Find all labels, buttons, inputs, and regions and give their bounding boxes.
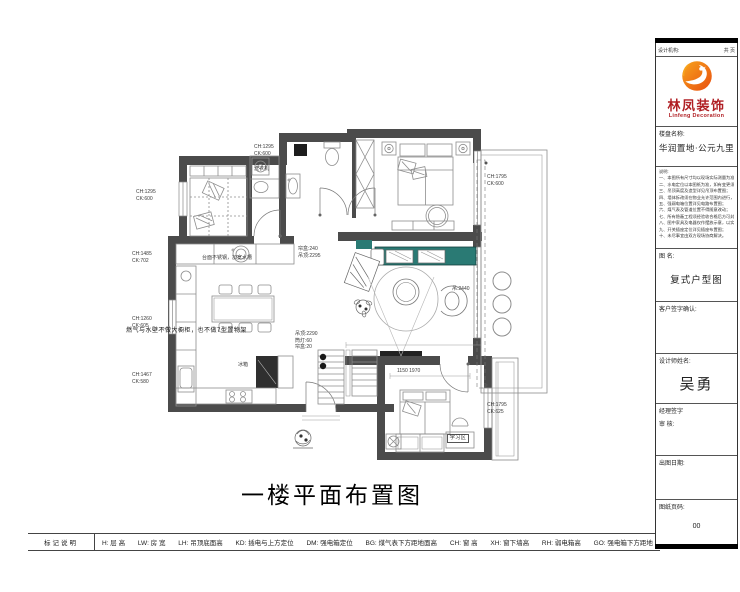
legend-item: RH: 弱电箱高: [542, 537, 581, 547]
dim-annotation: CH:1295 CK:600: [254, 144, 274, 157]
study-chair: [452, 418, 468, 426]
company-logo-block: 林凤装饰 Linfeng Decoration: [656, 56, 737, 126]
washer-label: 洗衣机: [254, 166, 269, 173]
designer-section: 设计师姓名: 吴勇: [656, 353, 737, 403]
project-name: 华润置地·公元九里: [656, 142, 737, 154]
entry-plant-icon: [293, 430, 313, 448]
note-line: 十、未尽事宜由双方现场协商解决。: [659, 233, 734, 239]
kitchen-dining: [158, 244, 294, 406]
bathroom: [286, 140, 374, 208]
header-right-label: 共 页: [724, 47, 735, 54]
page-label: 图纸页码:: [656, 500, 737, 511]
legend-header: 标记说明: [28, 534, 95, 550]
title-block: 设计机构: 共 页 林凤装饰 Linfeng Decoration 楼盘名称: …: [655, 38, 738, 549]
panel-top-bar: [655, 38, 738, 43]
legend-item: LW: 房 宽: [138, 537, 166, 547]
round-table: [426, 205, 448, 227]
dim-annotation: 1150 1970: [397, 368, 420, 375]
legend-item: XH: 窗下墙高: [490, 537, 529, 547]
cabinet-column: [176, 266, 196, 406]
dim-annotation: CH:1295 CK:600: [136, 189, 156, 202]
toilet-icon: [324, 142, 340, 148]
newel-post: [320, 363, 326, 369]
laundry-sink: [254, 182, 268, 193]
closet-hatched: [356, 140, 374, 208]
plant-icon: [354, 299, 373, 317]
page-number: 00: [656, 523, 737, 530]
legend-item: BG: 煤气表下方距地面高: [366, 537, 438, 547]
chair: [258, 323, 271, 332]
note-line: 六、煤气表及管道位置不得随意改动；: [659, 207, 734, 213]
shower-icon: [294, 144, 307, 156]
page-section: 图纸页码: 00: [656, 499, 737, 545]
tatami-room: [190, 166, 247, 236]
plan-title: 一楼平面布置图: [241, 476, 423, 510]
dim-annotation: CH:1795 CK:600: [487, 174, 507, 187]
manager-sign-section: 经理签字 审 核:: [656, 403, 737, 455]
designer-label: 设计师姓名:: [656, 354, 737, 365]
kitchen-note: 燃气与水壁不做大橱柜，也不做7型置物架: [126, 328, 247, 336]
dining-table: [212, 296, 274, 322]
review-label: 审 核:: [659, 419, 734, 432]
dim-annotation: 帘盒:240 吊顶:2295: [298, 246, 321, 259]
dim-annotation: 吊:2440: [452, 286, 470, 293]
legend-item: LH: 吊顶底面高: [178, 537, 222, 547]
study-area-label: 学习区: [447, 434, 469, 443]
project-label: 楼盘名称:: [656, 127, 737, 138]
company-name-cn: 林凤装饰: [656, 99, 737, 113]
legend-item: KD: 插电与上方定位: [236, 537, 294, 547]
dim-annotation: CH:1467 CK:580: [132, 372, 152, 385]
chair: [219, 285, 232, 294]
legend-items: H: 层 高 LW: 房 宽 LH: 吊顶底面高 KD: 插电与上方定位 DM:…: [95, 534, 660, 550]
legend-item: CH: 窗 高: [450, 537, 478, 547]
drawing-sheet: { "plan": { "title": "一楼平面布置图", "colors"…: [0, 0, 740, 592]
coffee-table: [393, 279, 419, 305]
cushion: [193, 212, 214, 229]
walls: [168, 129, 492, 460]
counter-note: 台面不锈钢，加宽水槽: [202, 255, 252, 262]
cushion: [202, 181, 224, 200]
plant-pot: [493, 318, 511, 336]
date-section: 出图日期:: [656, 455, 737, 499]
dim-annotation: 吊顶:2290 筒灯:60 帘盒:20: [295, 331, 318, 351]
entry: [293, 416, 340, 448]
side-table: [356, 240, 372, 249]
notes-section: 说明: 一、本图所有尺寸均以现场实际测量为准，施工前请仔细核对； 二、水电定位以…: [656, 166, 737, 248]
note-line: 三、吊顶高度及造型详见吊顶布置图；: [659, 188, 734, 194]
legend-item: H: 层 高: [102, 537, 125, 547]
plant-pot: [493, 272, 511, 290]
drawing-name-label: 图 名:: [656, 249, 737, 260]
dim-annotation: CH:1795 CK:625: [487, 402, 507, 415]
header-left-label: 设计机构:: [658, 47, 679, 54]
drawing-name-section: 图 名: 复式户型图: [656, 248, 737, 301]
dim-annotation: CH:1485 CK:702: [132, 251, 152, 264]
dim-line: [346, 342, 481, 348]
plant-pot: [493, 295, 511, 313]
client-sign-label: 客户签字确认:: [656, 302, 737, 313]
note-line: 八、图中家具及电器仅作摆放示意，以实际采购为准；: [659, 220, 734, 226]
phoenix-logo-icon: [678, 59, 716, 93]
legend-item: GO: 强电箱下方距地: [594, 537, 653, 547]
date-label: 出图日期:: [656, 456, 737, 467]
living-room: [344, 240, 481, 356]
newel-post: [320, 354, 326, 360]
note-line: 一、本图所有尺寸均以现场实际测量为准，施工前请仔细核对；: [659, 175, 734, 181]
manager-sign-label: 经理签字: [659, 406, 734, 419]
bench: [392, 221, 454, 230]
client-sign-section: 客户签字确认:: [656, 301, 737, 353]
project-section: 楼盘名称: 华润置地·公元九里: [656, 126, 737, 166]
bedroom-1: [382, 142, 470, 230]
legend-item: DM: 强电箱定位: [306, 537, 352, 547]
fridge-label: 冰箱: [238, 362, 248, 369]
designer-name: 吴勇: [656, 373, 737, 394]
chair: [239, 285, 252, 294]
legend-bar: 标记说明 H: 层 高 LW: 房 宽 LH: 吊顶底面高 KD: 插电与上方定…: [28, 533, 660, 551]
chair: [258, 285, 271, 294]
company-name-en: Linfeng Decoration: [656, 113, 737, 119]
drawing-name: 复式户型图: [656, 272, 737, 286]
panel-header-row: 设计机构: 共 页: [656, 44, 737, 56]
